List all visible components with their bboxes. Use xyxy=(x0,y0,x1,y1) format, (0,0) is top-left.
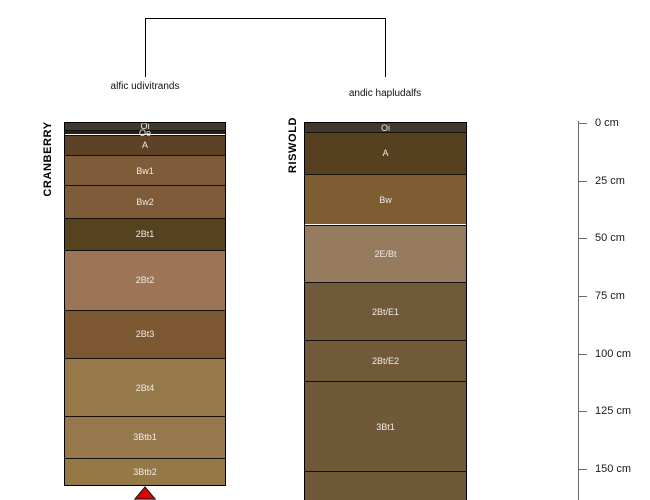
depth-tick xyxy=(578,123,587,124)
horizon-label: 3Btb2 xyxy=(133,467,157,477)
horizon-box: 2Bt1 xyxy=(65,218,225,250)
depth-tick-label: 125 cm xyxy=(595,405,631,417)
soil-profile-figure: alfic udivitrands andic hapludalfs CRANB… xyxy=(0,0,650,500)
horizon-label: Oe xyxy=(139,128,151,138)
depth-tick xyxy=(578,411,587,412)
depth-tick xyxy=(578,354,587,355)
depth-tick-label: 50 cm xyxy=(595,232,625,244)
horizon-box: 2Bt4 xyxy=(65,358,225,416)
dendrogram-bracket xyxy=(145,18,386,77)
horizon-label: Bw xyxy=(379,195,392,205)
profile-id-cranberry: CRANBERRY xyxy=(41,104,55,214)
horizon-box: 3Btb1 xyxy=(65,416,225,458)
horizon-box: 2Bt/E1 xyxy=(305,282,466,340)
depth-tick-label: 25 cm xyxy=(595,175,625,187)
depth-tick xyxy=(578,238,587,239)
profile-sketch-cranberry: OiOeABw1Bw22Bt12Bt22Bt32Bt43Btb13Btb2 xyxy=(64,122,226,486)
horizon-box: 3Bt1 xyxy=(305,381,466,471)
horizon-box: A xyxy=(305,132,466,174)
horizon-label: 2Bt3 xyxy=(136,329,155,339)
horizon-label: 2Bt/E2 xyxy=(372,356,399,366)
horizon-label: A xyxy=(382,148,388,158)
horizon-label: 3Btb1 xyxy=(133,432,157,442)
horizon-label: A xyxy=(142,140,148,150)
depth-tick-label: 100 cm xyxy=(595,348,631,360)
horizon-label: Bw1 xyxy=(136,166,154,176)
depth-tick-label: 75 cm xyxy=(595,290,625,302)
depth-tick-label: 0 cm xyxy=(595,117,619,129)
profile-id-riswold: RISWOLD xyxy=(286,90,300,200)
depth-axis-line xyxy=(578,121,579,500)
horizon-box: Bw1 xyxy=(65,155,225,185)
horizon-box: Bw2 xyxy=(65,185,225,217)
taxon-label-riswold: andic hapludalfs xyxy=(349,88,421,99)
horizon-box: 2Bt3 xyxy=(65,310,225,358)
profile-sketch-riswold: OiABw2E/Bt2Bt/E12Bt/E23Bt1 xyxy=(304,122,467,500)
horizon-box: Oi xyxy=(305,123,466,132)
horizon-label: 2Bt2 xyxy=(136,275,155,285)
horizon-box: 2Bt/E2 xyxy=(305,340,466,382)
horizon-box: 2Bt2 xyxy=(65,250,225,310)
horizon-box: 3Btb2 xyxy=(65,458,225,486)
horizon-label: 3Bt1 xyxy=(376,422,395,432)
depth-tick xyxy=(578,181,587,182)
horizon-box: Bw xyxy=(305,174,466,225)
profile-continues-arrow-icon xyxy=(134,486,156,500)
horizon-label: 2Bt4 xyxy=(136,383,155,393)
depth-tick-label: 150 cm xyxy=(595,463,631,475)
horizon-box xyxy=(305,471,466,500)
horizon-label: 2Bt/E1 xyxy=(372,307,399,317)
horizon-label: 2E/Bt xyxy=(374,249,396,259)
horizon-box: 2E/Bt xyxy=(305,225,466,283)
horizon-label: Oi xyxy=(381,123,390,133)
horizon-label: Bw2 xyxy=(136,197,154,207)
depth-tick xyxy=(578,296,587,297)
taxon-label-cranberry: alfic udivitrands xyxy=(111,81,180,92)
horizon-label: 2Bt1 xyxy=(136,229,155,239)
depth-tick xyxy=(578,469,587,470)
